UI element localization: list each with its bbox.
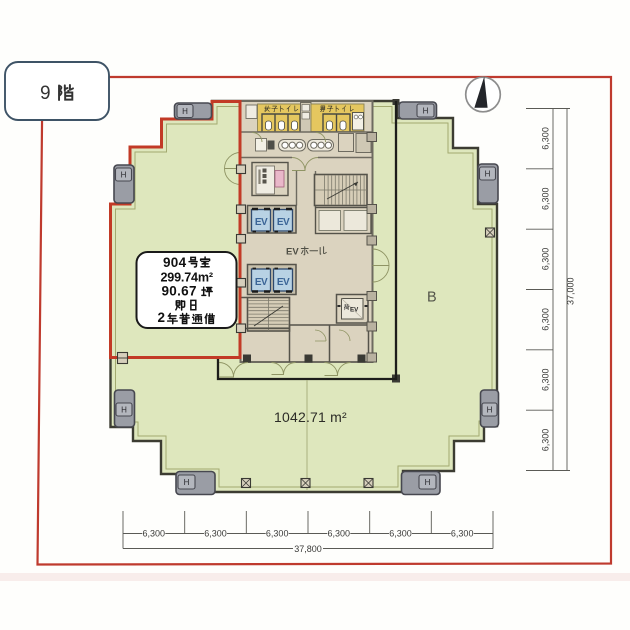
svg-text:6,300: 6,300	[541, 368, 551, 391]
svg-text:904: 904	[163, 255, 187, 270]
svg-text:EV: EV	[255, 277, 268, 288]
svg-text:2: 2	[158, 310, 166, 325]
svg-text:6,300: 6,300	[541, 308, 551, 331]
svg-text:H: H	[184, 478, 190, 487]
svg-text:EV: EV	[277, 217, 290, 228]
svg-text:EV: EV	[350, 307, 359, 314]
svg-text:6,300: 6,300	[143, 529, 166, 539]
svg-text:6,300: 6,300	[541, 187, 551, 210]
svg-text:6,300: 6,300	[328, 529, 351, 539]
svg-text:6,300: 6,300	[541, 429, 551, 452]
svg-text:6,300: 6,300	[541, 127, 551, 150]
svg-text:H: H	[425, 478, 431, 487]
svg-text:90.67: 90.67	[162, 284, 197, 299]
svg-text:EV: EV	[286, 247, 299, 258]
svg-text:H: H	[121, 171, 127, 180]
svg-text:H: H	[487, 406, 493, 415]
svg-text:6,300: 6,300	[541, 248, 551, 271]
svg-text:H: H	[423, 107, 429, 116]
svg-text:EV: EV	[277, 277, 290, 288]
svg-text:9: 9	[40, 83, 51, 104]
svg-text:H: H	[182, 107, 188, 116]
svg-text:37,000: 37,000	[566, 277, 576, 305]
svg-text:6,300: 6,300	[389, 529, 412, 539]
svg-text:6,300: 6,300	[266, 529, 289, 539]
svg-text:EV: EV	[255, 217, 268, 228]
svg-text:B: B	[427, 290, 437, 306]
svg-text:6,300: 6,300	[204, 529, 227, 539]
svg-text:6,300: 6,300	[451, 529, 474, 539]
svg-text:299.74m²: 299.74m²	[161, 271, 213, 285]
svg-text:H: H	[485, 170, 491, 179]
svg-text:37,800: 37,800	[294, 544, 322, 554]
svg-text:1042.71 m²: 1042.71 m²	[274, 409, 347, 425]
svg-text:H: H	[121, 406, 127, 415]
